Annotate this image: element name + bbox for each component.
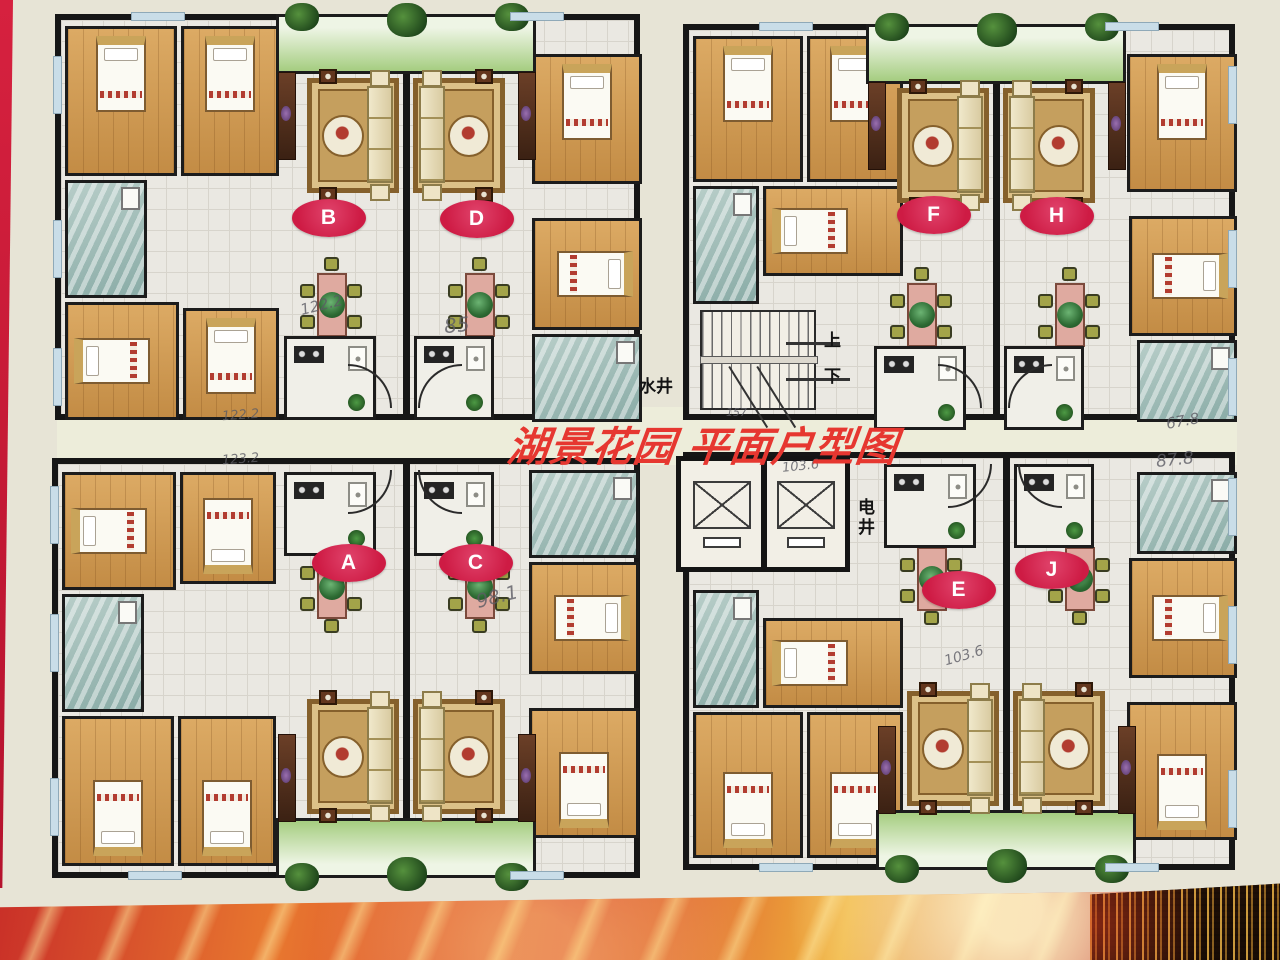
window-strip	[1228, 606, 1237, 664]
bed-icon	[1157, 64, 1207, 140]
chair-icon	[1038, 294, 1053, 308]
window-strip	[1228, 358, 1237, 416]
window-strip	[53, 348, 62, 406]
sofa-set-icon	[897, 88, 989, 203]
window-strip	[50, 614, 59, 672]
elevator-door-slab	[787, 537, 825, 548]
armchair-icon	[960, 80, 980, 97]
bedroom	[180, 472, 276, 584]
armchair-icon	[422, 184, 442, 201]
staircase	[700, 310, 816, 410]
door-arc-icon	[938, 364, 982, 408]
chair-icon	[1085, 325, 1100, 339]
elevator-core	[676, 456, 850, 572]
chair-icon	[890, 325, 905, 339]
toilet-icon	[616, 341, 635, 364]
window-strip	[759, 22, 813, 31]
plant-icon	[1056, 404, 1073, 421]
bathroom	[65, 180, 147, 298]
side-table-icon	[919, 682, 937, 697]
bed-icon	[1152, 253, 1228, 299]
chair-icon	[495, 284, 510, 298]
handwritten-area: 87.8	[1155, 448, 1195, 472]
chair-icon	[1072, 611, 1087, 625]
window-strip	[510, 871, 564, 880]
armchair-icon	[970, 683, 990, 700]
bed-icon	[562, 64, 612, 140]
sink-icon	[466, 482, 485, 507]
unit-label-f: F	[897, 196, 971, 234]
chair-icon	[495, 315, 510, 329]
bed-icon	[202, 780, 252, 856]
plant-icon	[387, 3, 427, 37]
bed-icon	[772, 640, 848, 686]
apartment-block	[52, 458, 640, 878]
chair-icon	[914, 267, 929, 281]
bedroom	[65, 26, 177, 176]
bathroom	[1137, 340, 1237, 422]
chair-icon	[448, 284, 463, 298]
chair-icon	[324, 257, 339, 271]
unit-divider-wall	[1003, 458, 1010, 864]
plant-icon	[466, 394, 483, 411]
plant-column-icon	[278, 72, 296, 160]
side-table-icon	[475, 690, 493, 705]
chair-icon	[900, 589, 915, 603]
window-strip	[1228, 770, 1237, 828]
bed-icon	[93, 780, 143, 856]
bedroom	[183, 308, 279, 420]
handwritten-area: 122.2	[222, 407, 260, 425]
unit-label-j: J	[1015, 551, 1089, 589]
bed-icon	[71, 508, 147, 554]
plant-icon	[285, 863, 319, 891]
bed-icon	[723, 772, 773, 848]
chair-icon	[347, 284, 362, 298]
bedroom	[529, 708, 639, 838]
bedroom	[763, 618, 903, 708]
sofa-set-icon	[907, 691, 999, 806]
door-arc-icon	[348, 470, 392, 514]
plant-column-icon	[518, 734, 536, 822]
window-strip	[53, 56, 62, 114]
chair-icon	[300, 597, 315, 611]
unit-label-d: D	[440, 200, 514, 238]
plant-column-icon	[518, 72, 536, 160]
unit-label-a: A	[312, 544, 386, 582]
plant-icon	[885, 855, 919, 883]
plant-icon	[977, 13, 1017, 47]
handwritten-area: 85	[443, 312, 471, 339]
chair-icon	[1062, 267, 1077, 281]
stove-icon	[884, 356, 914, 373]
side-table-icon	[1065, 79, 1083, 94]
chair-icon	[472, 619, 487, 633]
bed-icon	[203, 498, 253, 574]
poster-title: 湖景花园 平面户型图	[504, 413, 902, 473]
side-table-icon	[909, 79, 927, 94]
bedroom	[532, 54, 642, 184]
chair-icon	[472, 257, 487, 271]
armchair-icon	[422, 70, 442, 87]
sofa-icon	[419, 707, 445, 804]
bedroom	[693, 712, 803, 858]
elevator-divider-wall	[761, 461, 767, 567]
plant-icon	[948, 522, 965, 539]
bedroom	[181, 26, 279, 176]
bedroom	[1127, 702, 1237, 840]
plant-icon	[987, 849, 1027, 883]
chair-icon	[347, 597, 362, 611]
bedroom	[1127, 54, 1237, 192]
stove-icon	[424, 346, 454, 363]
bedroom	[1129, 558, 1237, 678]
handwritten-area: 123.2	[222, 451, 260, 469]
armchair-icon	[970, 797, 990, 814]
toilet-icon	[613, 477, 632, 500]
toilet-icon	[733, 193, 752, 216]
chair-icon	[900, 558, 915, 572]
floor-plan-poster: 上 下 水井 电井 B D F H A C E J 122.2 85 122.2…	[0, 0, 1280, 960]
bedroom	[529, 562, 639, 674]
side-table-icon	[475, 808, 493, 823]
plant-column-icon	[278, 734, 296, 822]
side-table-icon	[319, 69, 337, 84]
bedroom	[532, 218, 642, 330]
chair-icon	[937, 294, 952, 308]
side-table-icon	[319, 690, 337, 705]
door-arc-icon	[348, 364, 392, 408]
armchair-icon	[1022, 797, 1042, 814]
unit-label-b: B	[292, 199, 366, 237]
plant-icon	[387, 857, 427, 891]
balcony	[276, 818, 536, 878]
sofa-icon	[367, 86, 393, 183]
bed-icon	[830, 772, 880, 848]
chair-icon	[1038, 325, 1053, 339]
bed-icon	[559, 752, 609, 828]
side-table-icon	[919, 800, 937, 815]
sink-icon	[1066, 474, 1085, 499]
sofa-set-icon	[413, 699, 505, 814]
elevator-icon	[777, 481, 835, 529]
bathroom	[693, 186, 759, 304]
balcony	[876, 810, 1136, 870]
sofa-set-icon	[307, 699, 399, 814]
stove-icon	[894, 474, 924, 491]
dining-table-icon	[1055, 283, 1085, 347]
bedroom	[763, 186, 903, 276]
bed-icon	[1157, 754, 1207, 830]
bedroom	[693, 36, 803, 182]
bathroom	[62, 594, 144, 712]
balcony	[276, 14, 536, 74]
armchair-icon	[422, 805, 442, 822]
bathroom	[532, 334, 642, 422]
unit-divider-wall	[403, 20, 410, 414]
side-table-icon	[1075, 800, 1093, 815]
sofa-set-icon	[1013, 691, 1105, 806]
bed-icon	[554, 595, 630, 641]
plant-icon	[1066, 522, 1083, 539]
stove-icon	[294, 346, 324, 363]
sofa-set-icon	[413, 78, 505, 193]
window-strip	[1105, 22, 1159, 31]
window-strip	[53, 220, 62, 278]
window-strip	[1228, 478, 1237, 536]
bathroom	[529, 470, 639, 558]
chair-icon	[448, 597, 463, 611]
stair-up-label: 上	[824, 326, 841, 351]
sofa-icon	[1019, 699, 1045, 796]
chair-icon	[347, 315, 362, 329]
sofa-set-icon	[1003, 88, 1095, 203]
window-strip	[1228, 230, 1237, 288]
balcony	[866, 24, 1126, 84]
stair-down-label: 下	[824, 362, 841, 387]
bedroom	[65, 302, 179, 420]
chair-icon	[947, 558, 962, 572]
sofa-set-icon	[307, 78, 399, 193]
unit-divider-wall	[993, 30, 1000, 414]
window-strip	[50, 486, 59, 544]
unit-divider-wall	[403, 464, 410, 872]
chair-icon	[1048, 589, 1063, 603]
poster-left-red-strip	[0, 0, 13, 888]
unit-label-c: C	[439, 544, 513, 582]
sink-icon	[466, 346, 485, 371]
bed-icon	[96, 36, 146, 112]
sink-icon	[1056, 356, 1075, 381]
door-arc-icon	[948, 464, 992, 508]
window-strip	[1105, 863, 1159, 872]
armchair-icon	[370, 184, 390, 201]
elevator-icon	[693, 481, 751, 529]
window-strip	[759, 863, 813, 872]
plant-column-icon	[878, 726, 896, 814]
armchair-icon	[1012, 80, 1032, 97]
bed-icon	[205, 36, 255, 112]
bathroom	[693, 590, 759, 708]
poster-bottom-band	[0, 880, 1280, 960]
window-strip	[1228, 66, 1237, 124]
dining-table-icon	[907, 283, 937, 347]
armchair-icon	[370, 70, 390, 87]
toilet-icon	[733, 597, 752, 620]
elevator-door-slab	[703, 537, 741, 548]
bathroom	[1137, 472, 1237, 554]
bed-icon	[74, 338, 150, 384]
plant-column-icon	[1118, 726, 1136, 814]
bedroom	[1129, 216, 1237, 336]
armchair-icon	[370, 805, 390, 822]
chair-icon	[300, 284, 315, 298]
armchair-icon	[1022, 683, 1042, 700]
sofa-icon	[957, 96, 983, 193]
bedroom	[178, 716, 276, 866]
plant-icon	[875, 13, 909, 41]
stair-landing	[700, 356, 818, 364]
side-table-icon	[319, 808, 337, 823]
bed-icon	[772, 208, 848, 254]
chair-icon	[1085, 294, 1100, 308]
plant-column-icon	[868, 82, 886, 170]
bed-icon	[723, 46, 773, 122]
window-strip	[131, 12, 185, 21]
chair-icon	[937, 325, 952, 339]
chair-icon	[924, 611, 939, 625]
sofa-icon	[1009, 96, 1035, 193]
chair-icon	[890, 294, 905, 308]
window-strip	[50, 778, 59, 836]
bed-icon	[206, 318, 256, 394]
chair-icon	[324, 619, 339, 633]
unit-label-h: H	[1020, 197, 1094, 235]
window-strip	[128, 871, 182, 880]
water-shaft-label: 水井	[639, 372, 673, 397]
sofa-icon	[367, 707, 393, 804]
chair-icon	[1095, 589, 1110, 603]
armchair-icon	[370, 691, 390, 708]
sofa-icon	[419, 86, 445, 183]
armchair-icon	[422, 691, 442, 708]
bedroom	[62, 472, 176, 590]
toilet-icon	[118, 601, 137, 624]
bed-icon	[557, 251, 633, 297]
side-table-icon	[475, 69, 493, 84]
electric-shaft-label: 电井	[852, 498, 877, 554]
unit-label-e: E	[922, 571, 996, 609]
sofa-icon	[967, 699, 993, 796]
bed-icon	[1152, 595, 1228, 641]
plant-icon	[285, 3, 319, 31]
window-strip	[510, 12, 564, 21]
toilet-icon	[121, 187, 140, 210]
plant-column-icon	[1108, 82, 1126, 170]
chair-icon	[1095, 558, 1110, 572]
bedroom	[62, 716, 174, 866]
side-table-icon	[1075, 682, 1093, 697]
stove-icon	[294, 482, 324, 499]
city-night-image	[1090, 882, 1280, 960]
